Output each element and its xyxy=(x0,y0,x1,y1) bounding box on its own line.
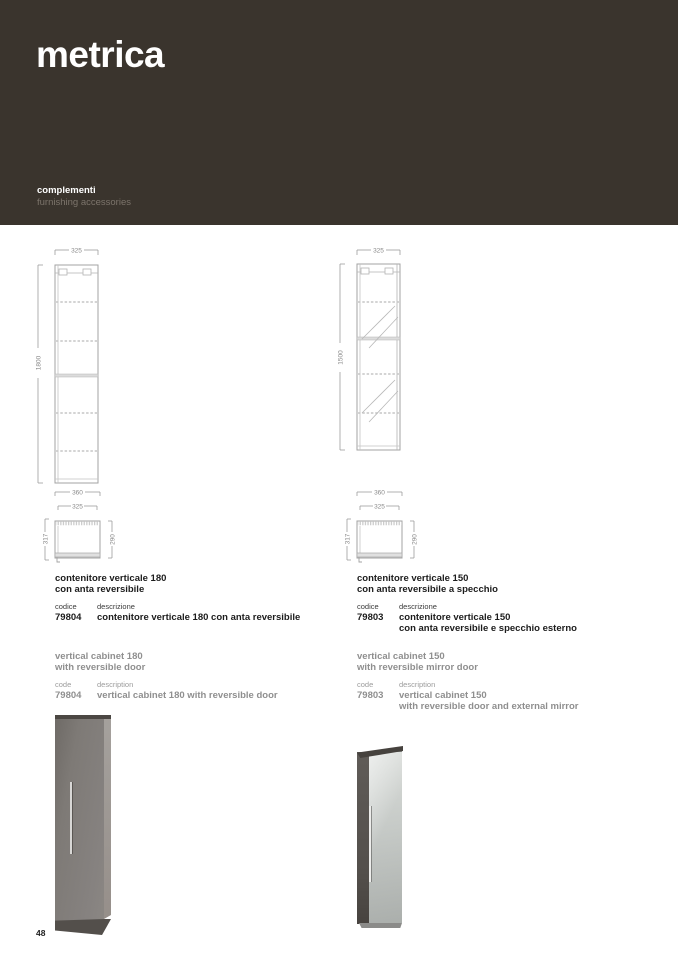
dimension-label-plan-depth-total: 317 xyxy=(43,533,50,544)
dimension-label-plan-outer: 360 xyxy=(374,490,385,497)
cabinet-side-panel xyxy=(357,752,369,924)
code-column: codice 79804 xyxy=(55,602,97,623)
code-description-row: code 79804 description vertical cabinet … xyxy=(55,680,335,701)
technical-drawing-cabinet-180: 325 1800 xyxy=(28,236,128,568)
elevation-and-plan-drawing-180: 325 1800 xyxy=(28,236,128,568)
description-column: description vertical cabinet 150 with re… xyxy=(399,680,579,712)
product-photo-cabinet-180 xyxy=(55,715,111,935)
cabinet-side-panel xyxy=(104,716,111,919)
page-number: 48 xyxy=(36,928,45,938)
dimension-label-front-width: 325 xyxy=(373,248,384,255)
product-title-line1: contenitore verticale 180 xyxy=(55,573,166,584)
code-column: code 79803 xyxy=(357,680,399,712)
header-band: metrica complementi furnishing accessori… xyxy=(0,0,678,225)
cabinet-elevation-outline xyxy=(55,265,98,483)
description-value: vertical cabinet 180 with reversible doo… xyxy=(97,690,278,701)
description-value-line2: con anta reversibile e specchio esterno xyxy=(399,623,577,634)
description-label: description xyxy=(399,680,579,689)
code-column: code 79804 xyxy=(55,680,97,701)
code-label: code xyxy=(55,680,97,689)
cabinet-bottom-shadow xyxy=(359,923,402,928)
cabinet-elevation-outline xyxy=(357,264,400,450)
product-title-english: vertical cabinet 180 with reversible doo… xyxy=(55,651,335,673)
cabinet-handle xyxy=(70,782,72,854)
code-value: 79803 xyxy=(357,690,399,701)
code-description-row: codice 79803 descrizione contenitore ver… xyxy=(357,602,637,634)
technical-drawing-cabinet-150: 325 1500 xyxy=(330,236,430,568)
description-value-line2: with reversible door and external mirror xyxy=(399,701,579,712)
cabinet-bottom-shadow xyxy=(55,919,111,935)
cabinet-plan-outline xyxy=(55,521,100,562)
description-value-line1: contenitore verticale 150 xyxy=(399,612,577,623)
description-column: description vertical cabinet 180 with re… xyxy=(97,680,278,701)
product-title-line1: vertical cabinet 180 xyxy=(55,651,143,662)
description-label: descrizione xyxy=(399,602,577,611)
code-value: 79803 xyxy=(357,612,399,623)
cabinet-mirror-door xyxy=(369,751,402,923)
dimension-label-plan-inner: 325 xyxy=(374,504,385,511)
product-info-english-180: vertical cabinet 180 with reversible doo… xyxy=(55,651,335,701)
product-title-line1: vertical cabinet 150 xyxy=(357,651,445,662)
product-info-italian-150: contenitore verticale 150 con anta rever… xyxy=(357,573,637,634)
dimension-label-plan-outer: 360 xyxy=(72,490,83,497)
code-column: codice 79803 xyxy=(357,602,399,634)
dimension-label-plan-depth-body: 290 xyxy=(110,534,117,545)
product-photo-cabinet-150 xyxy=(357,746,403,928)
cabinet-handle xyxy=(369,806,371,882)
product-title-line2: con anta reversibile a specchio xyxy=(357,584,498,595)
dimension-label-plan-depth-total: 317 xyxy=(345,533,352,544)
code-description-row: code 79803 description vertical cabinet … xyxy=(357,680,637,712)
code-description-row: codice 79804 descrizione contenitore ver… xyxy=(55,602,335,623)
brand-logo: metrica xyxy=(36,34,164,76)
description-column: descrizione contenitore verticale 150 co… xyxy=(399,602,577,634)
dimension-label-height: 1500 xyxy=(338,350,345,365)
product-title-line2: with reversible door xyxy=(55,662,145,673)
product-title-line2: con anta reversibile xyxy=(55,584,144,595)
description-value-line1: vertical cabinet 150 xyxy=(399,690,579,701)
product-title-english: vertical cabinet 150 with reversible mir… xyxy=(357,651,637,673)
cabinet-front-panel xyxy=(55,715,104,921)
dimension-label-plan-inner: 325 xyxy=(72,504,83,511)
product-title-line1: contenitore verticale 150 xyxy=(357,573,468,584)
dimension-label-front-width: 325 xyxy=(71,248,82,255)
elevation-and-plan-drawing-150: 325 1500 xyxy=(330,236,430,568)
category-title-english: furnishing accessories xyxy=(37,197,131,208)
description-column: descrizione contenitore verticale 180 co… xyxy=(97,602,300,623)
dimension-label-plan-depth-body: 290 xyxy=(412,534,419,545)
code-label: codice xyxy=(357,602,399,611)
cabinet-top-edge xyxy=(55,715,111,719)
code-value: 79804 xyxy=(55,612,97,623)
category-title-italian: complementi xyxy=(37,185,96,196)
product-title-italian: contenitore verticale 180 con anta rever… xyxy=(55,573,335,595)
code-label: codice xyxy=(55,602,97,611)
product-title-line2: with reversible mirror door xyxy=(357,662,478,673)
description-value: contenitore verticale 180 con anta rever… xyxy=(97,612,300,623)
code-value: 79804 xyxy=(55,690,97,701)
catalog-page: metrica complementi furnishing accessori… xyxy=(0,0,678,963)
description-label: description xyxy=(97,680,278,689)
product-info-english-150: vertical cabinet 150 with reversible mir… xyxy=(357,651,637,712)
product-title-italian: contenitore verticale 150 con anta rever… xyxy=(357,573,637,595)
dimension-height xyxy=(38,265,43,483)
cabinet-plan-outline xyxy=(357,521,402,562)
product-info-italian-180: contenitore verticale 180 con anta rever… xyxy=(55,573,335,623)
dimension-label-height: 1800 xyxy=(36,355,43,370)
description-label: descrizione xyxy=(97,602,300,611)
code-label: code xyxy=(357,680,399,689)
